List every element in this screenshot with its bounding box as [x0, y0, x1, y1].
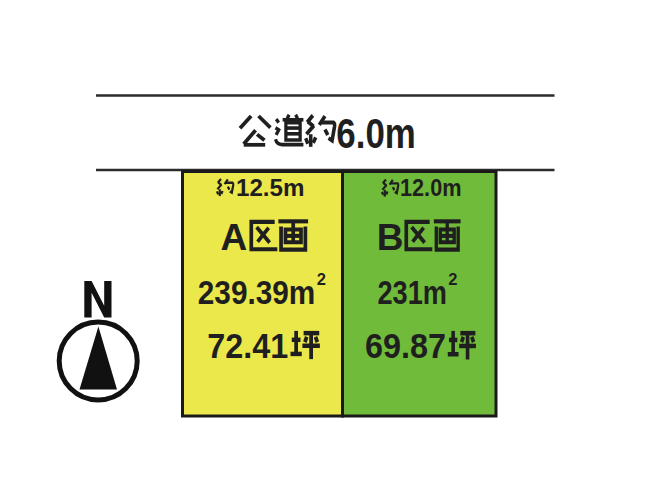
svg-text:72.41: 72.41: [207, 326, 288, 365]
svg-text:69.87: 69.87: [365, 326, 446, 365]
svg-text:12.0m: 12.0m: [400, 174, 462, 201]
svg-text:2: 2: [317, 270, 326, 288]
svg-text:231m: 231m: [378, 274, 448, 311]
svg-text:B: B: [377, 217, 404, 258]
svg-text:12.5m: 12.5m: [236, 174, 305, 201]
svg-text:6.0m: 6.0m: [336, 109, 416, 157]
svg-text:2: 2: [448, 270, 457, 288]
svg-text:239.39m: 239.39m: [198, 274, 315, 311]
svg-text:A: A: [221, 217, 248, 258]
